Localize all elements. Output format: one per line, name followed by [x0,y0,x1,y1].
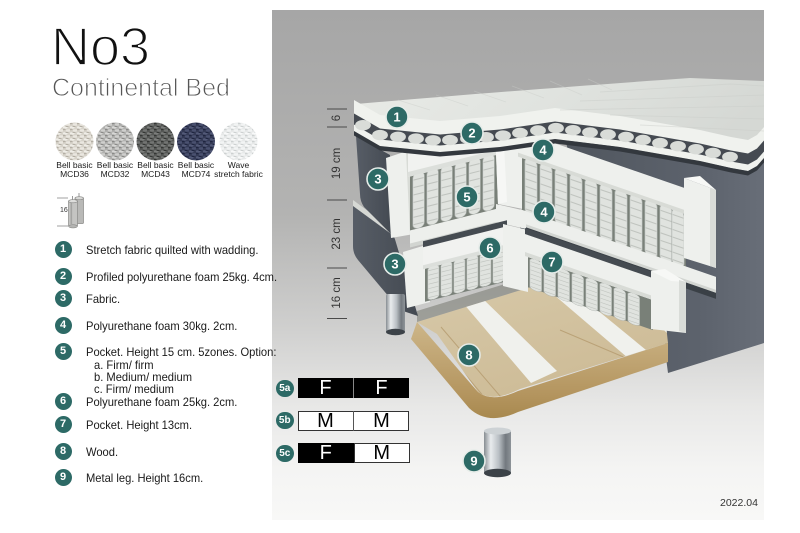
svg-text:5: 5 [463,190,470,205]
svg-text:6: 6 [486,241,493,256]
svg-text:3: 3 [374,172,381,187]
svg-text:16 cm: 16 cm [331,277,343,308]
svg-text:2: 2 [468,126,475,141]
svg-text:MCD43: MCD43 [141,169,170,179]
svg-text:8: 8 [465,348,472,363]
svg-text:1: 1 [393,110,400,125]
svg-text:4: 4 [539,143,547,158]
svg-text:9: 9 [470,454,477,469]
svg-text:7: 7 [548,255,555,270]
svg-text:23 cm: 23 cm [331,218,343,249]
svg-text:19 cm: 19 cm [331,148,343,179]
svg-text:3: 3 [391,257,398,272]
svg-text:4: 4 [540,205,548,220]
svg-text:stretch fabric: stretch fabric [214,169,263,179]
svg-text:MCD36: MCD36 [60,169,89,179]
svg-text:6: 6 [331,115,343,121]
svg-text:MCD32: MCD32 [101,169,130,179]
svg-text:MCD74: MCD74 [182,169,211,179]
svg-text:2022.04: 2022.04 [720,497,758,509]
svg-text:16: 16 [60,207,68,214]
